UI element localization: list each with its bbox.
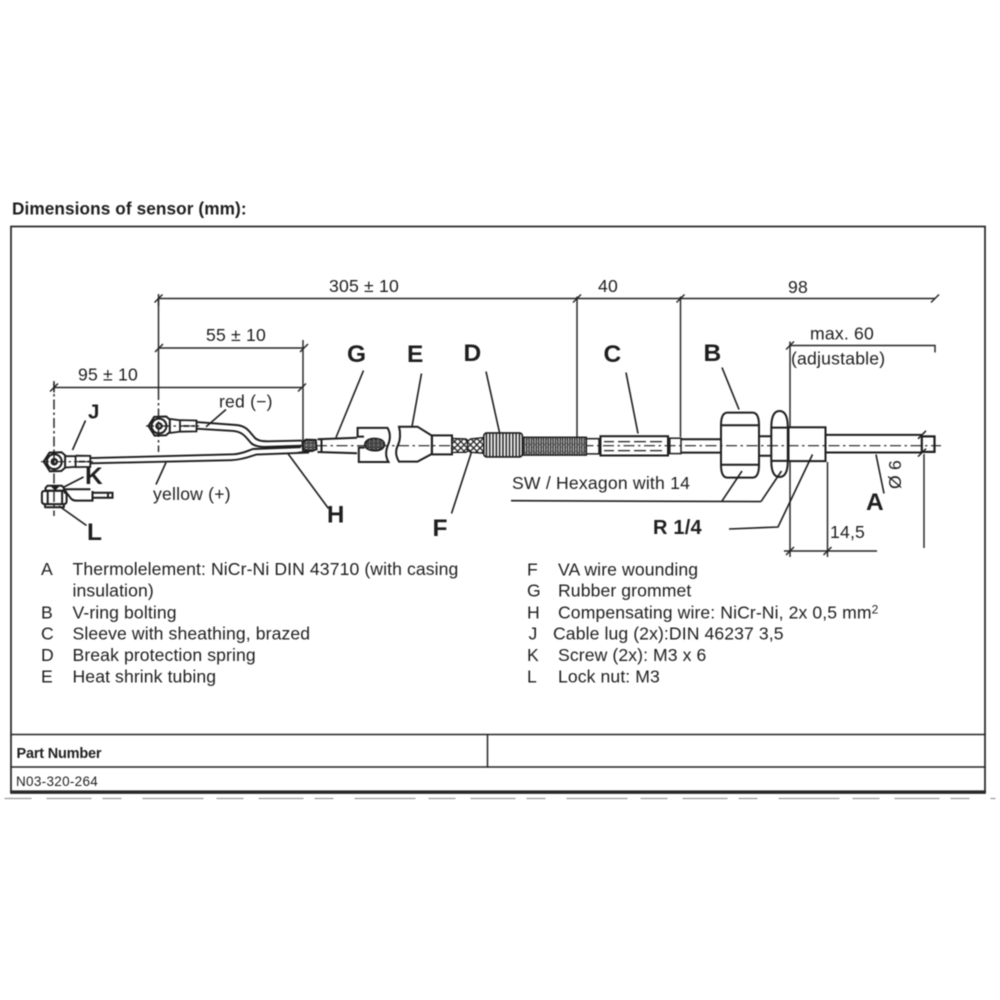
- svg-text:V-ring bolting: V-ring bolting: [73, 603, 177, 623]
- svg-text:C: C: [41, 624, 54, 644]
- svg-text:A: A: [866, 489, 884, 516]
- svg-text:Thermolelement: NiCr-Ni DIN 43: Thermolelement: NiCr-Ni DIN 43710 (with …: [73, 559, 459, 579]
- svg-text:Break protection spring: Break protection spring: [73, 645, 256, 665]
- svg-text:14,5: 14,5: [830, 522, 865, 542]
- svg-text:K: K: [85, 463, 103, 490]
- svg-text:insulation): insulation): [73, 580, 154, 600]
- svg-text:Compensating wire: NiCr-Ni, 2x: Compensating wire: NiCr-Ni, 2x 0,5 mm2: [558, 603, 879, 623]
- svg-text:Sleeve with sheathing, brazed: Sleeve with sheathing, brazed: [73, 624, 311, 644]
- svg-text:VA wire wounding: VA wire wounding: [558, 560, 698, 580]
- svg-text:B: B: [41, 603, 53, 623]
- svg-text:J: J: [529, 624, 538, 644]
- svg-text:N03-320-264: N03-320-264: [16, 774, 98, 789]
- svg-text:A: A: [41, 559, 53, 579]
- svg-text:R 1/4: R 1/4: [653, 517, 702, 539]
- svg-text:L: L: [527, 667, 537, 687]
- svg-text:Cable lug (2x):DIN 46237 3,5: Cable lug (2x):DIN 46237 3,5: [553, 624, 784, 644]
- svg-text:F: F: [527, 560, 538, 580]
- svg-text:Screw (2x): M3 x 6: Screw (2x): M3 x 6: [558, 645, 707, 665]
- svg-text:SW / Hexagon with 14: SW / Hexagon with 14: [512, 473, 690, 493]
- svg-text:Lock nut: M3: Lock nut: M3: [558, 667, 660, 687]
- svg-text:max. 60: max. 60: [810, 324, 874, 344]
- svg-text:95 ± 10: 95 ± 10: [78, 365, 138, 385]
- svg-text:Rubber grommet: Rubber grommet: [558, 581, 691, 601]
- svg-text:yellow (+): yellow (+): [153, 484, 231, 504]
- svg-text:Ø 6: Ø 6: [885, 460, 905, 489]
- svg-text:E: E: [41, 667, 53, 687]
- svg-text:E: E: [407, 341, 423, 368]
- svg-text:J: J: [88, 401, 99, 424]
- svg-text:K: K: [527, 645, 539, 665]
- svg-text:F: F: [433, 515, 448, 542]
- svg-text:G: G: [347, 341, 366, 368]
- svg-text:H: H: [327, 502, 344, 529]
- svg-text:G: G: [527, 581, 541, 601]
- svg-text:305 ± 10: 305 ± 10: [329, 276, 399, 296]
- svg-text:Dimensions of sensor (mm):: Dimensions of sensor (mm):: [12, 199, 247, 219]
- svg-text:98: 98: [788, 277, 808, 297]
- svg-text:Part Number: Part Number: [17, 746, 102, 762]
- svg-text:H: H: [527, 603, 540, 623]
- svg-text:Heat shrink tubing: Heat shrink tubing: [73, 667, 217, 687]
- svg-text:D: D: [464, 340, 482, 367]
- svg-text:C: C: [604, 341, 622, 368]
- svg-text:L: L: [87, 519, 102, 546]
- svg-text:55 ± 10: 55 ± 10: [206, 325, 266, 345]
- svg-text:40: 40: [598, 276, 618, 296]
- svg-text:D: D: [41, 645, 54, 665]
- svg-text:red (−): red (−): [219, 392, 273, 412]
- svg-text:B: B: [704, 340, 722, 367]
- svg-text:(adjustable): (adjustable): [791, 349, 885, 369]
